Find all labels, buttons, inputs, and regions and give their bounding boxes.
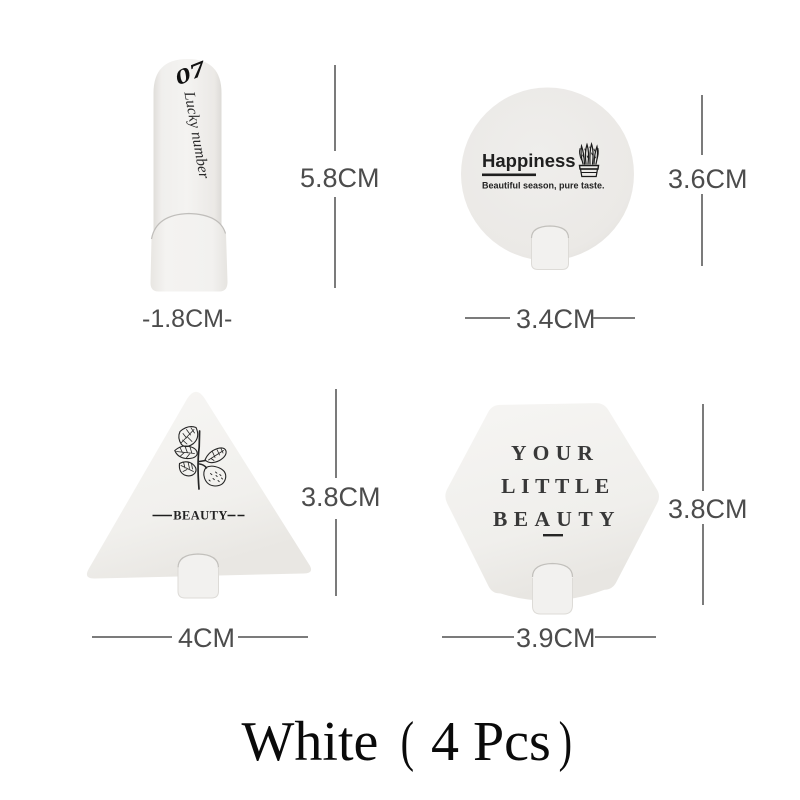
svg-text:BEAUTY: BEAUTY	[493, 507, 621, 531]
svg-text:YOUR: YOUR	[511, 441, 599, 465]
svg-text:Beautiful season, pure taste.: Beautiful season, pure taste.	[482, 181, 605, 191]
svg-text:Happiness: Happiness	[482, 150, 576, 171]
svg-text:LITTLE: LITTLE	[501, 474, 615, 498]
svg-text:BEAUTY: BEAUTY	[173, 509, 228, 523]
